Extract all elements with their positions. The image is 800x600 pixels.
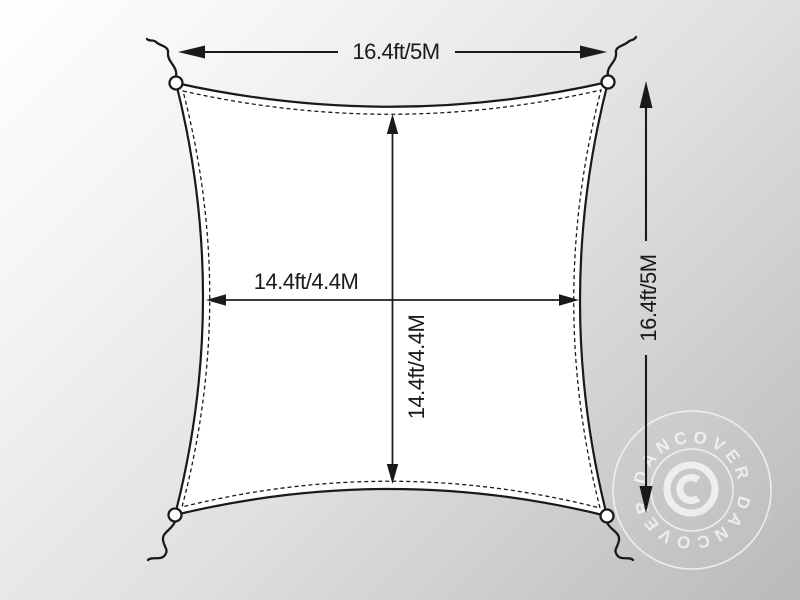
arrowhead-right-icon (580, 46, 607, 59)
watermark-inner-circle (651, 449, 733, 531)
corner-ring-bottom-right (601, 510, 614, 523)
dimension-label-top-width: 16.4ft/5M (352, 39, 439, 64)
rope-top-left (147, 39, 176, 77)
rope-bottom-left (148, 522, 175, 561)
sail (175, 82, 608, 516)
diagram-canvas: DANCOVER DANCOVER (0, 0, 800, 600)
watermark-outer-circle (613, 411, 771, 569)
copyright-c-glyph (680, 478, 698, 501)
dimension-label-inner-height: 14.4ft/4.4M (404, 315, 429, 420)
dimension-top-width: 16.4ft/5M (178, 39, 607, 64)
watermark-stamp: DANCOVER DANCOVER (613, 411, 771, 569)
shade-sail-diagram: DANCOVER DANCOVER (0, 0, 800, 600)
copyright-ring (667, 465, 715, 513)
rope-bottom-right (607, 523, 633, 561)
dimension-label-right-height: 16.4ft/5M (636, 254, 661, 341)
corner-ring-top-left (170, 77, 183, 90)
corner-ring-top-right (602, 76, 615, 89)
rope-top-right (608, 37, 636, 76)
dimension-label-inner-width: 14.4ft/4.4M (254, 269, 359, 294)
sail-outline (175, 82, 608, 516)
arrowhead-left-icon (178, 46, 205, 59)
arrowhead-up-icon (640, 81, 653, 108)
copyright-icon (667, 465, 715, 513)
corner-ring-bottom-left (169, 509, 182, 522)
